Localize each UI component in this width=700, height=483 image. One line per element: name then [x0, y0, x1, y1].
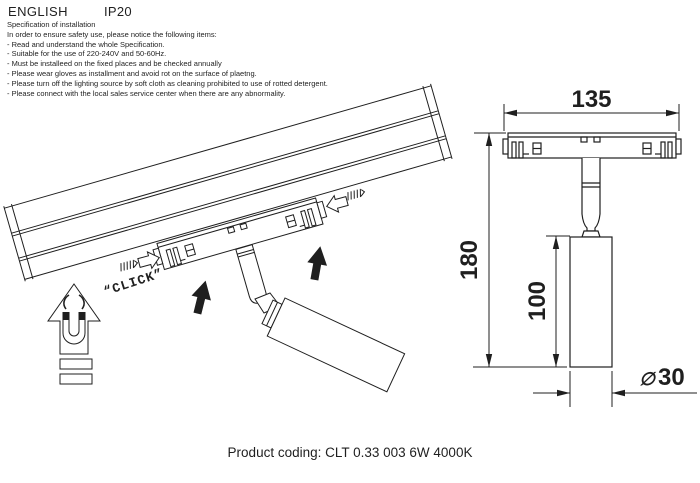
dimension-drawing — [503, 133, 681, 367]
product-coding: Product coding: CLT 0.33 003 6W 4000K — [0, 445, 700, 460]
screw-icon — [119, 259, 138, 271]
dim-height-line — [473, 133, 567, 367]
diameter-symbol: ∅ — [639, 369, 655, 389]
dim-body-height-label: 100 — [524, 279, 552, 323]
lamp-cylinder — [258, 294, 404, 392]
diameter-value: 30 — [658, 364, 685, 391]
slide-arrow-icon — [325, 193, 350, 215]
spec-sheet-page: ENGLISH IP20 Specification of installati… — [0, 0, 700, 483]
press-arrow-icon — [188, 278, 216, 316]
screw-icon — [346, 188, 365, 200]
diagram-canvas — [0, 0, 700, 483]
dim-width-label: 135 — [504, 86, 679, 114]
track-slot-symbol — [60, 374, 92, 384]
dim-diameter-label: ∅30 — [624, 364, 700, 392]
magnet-indicator — [48, 284, 100, 384]
dim-height-label: 180 — [456, 238, 484, 282]
track-slot-symbol — [60, 359, 92, 369]
press-arrow-icon — [305, 245, 331, 282]
